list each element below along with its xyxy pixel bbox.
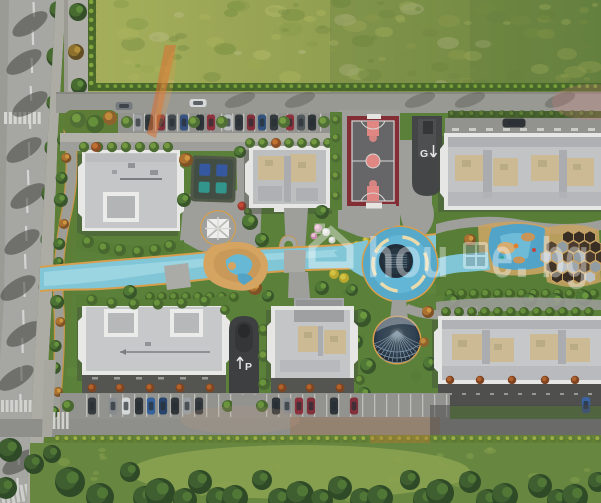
svg-text:hou: hou (367, 226, 449, 290)
svg-text:bg: bg (541, 226, 589, 290)
svg-text:.: . (514, 226, 530, 290)
svg-text:e: e (491, 226, 513, 290)
